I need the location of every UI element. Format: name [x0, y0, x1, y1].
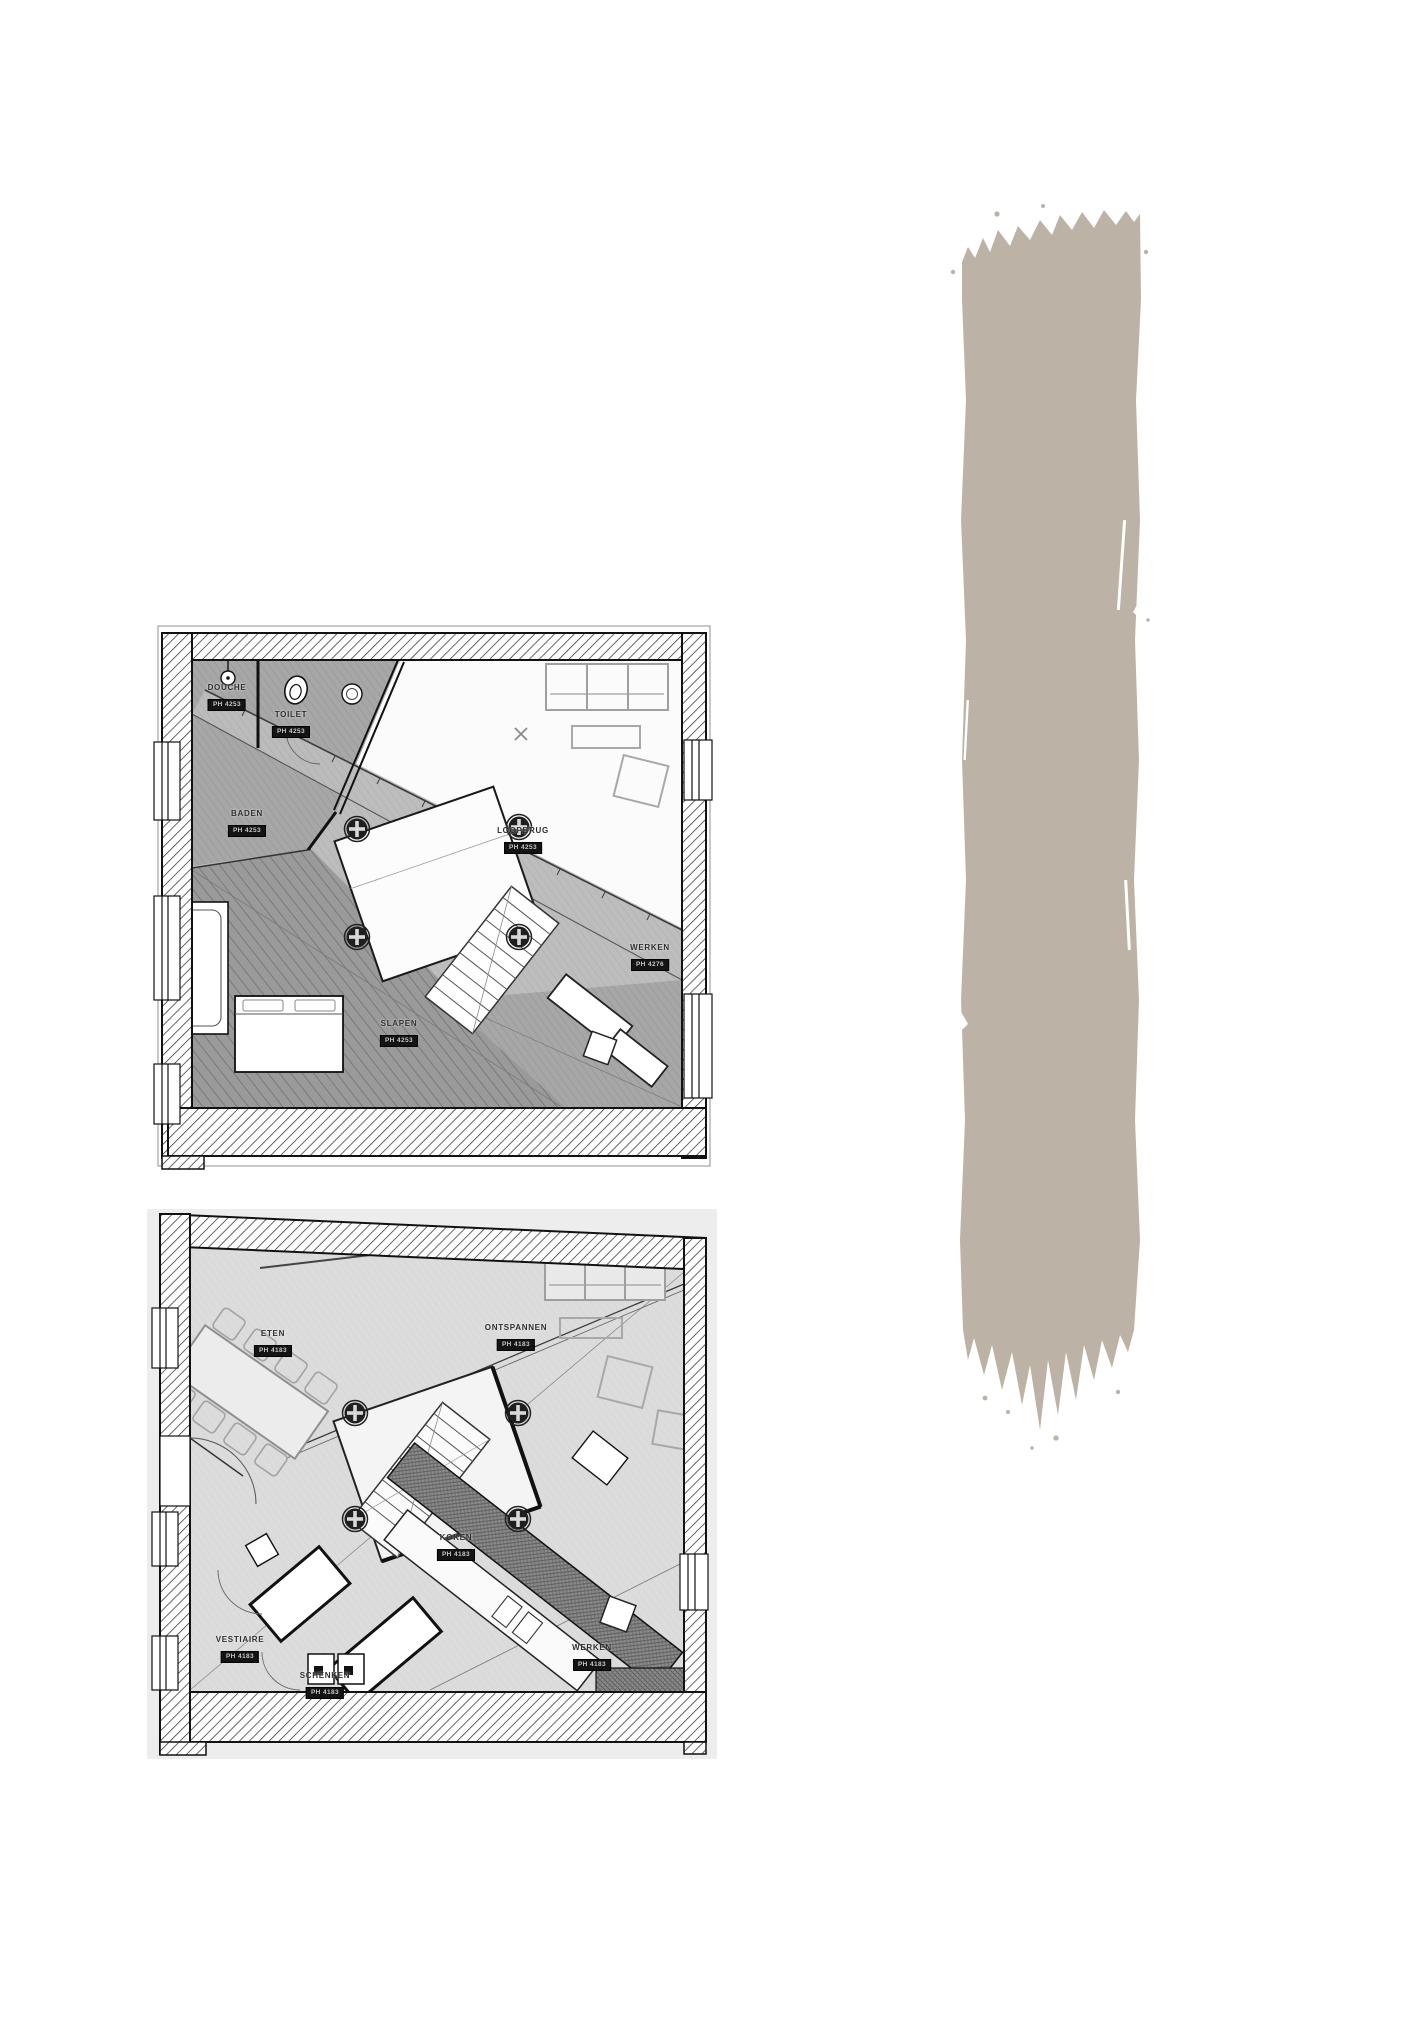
room-level-badge: PH 4183: [573, 1659, 611, 1672]
page: DOUCHE PH 4253 TOILET PH 4253 BADEN PH 4…: [0, 0, 1428, 2028]
room-name: ETEN: [254, 1330, 292, 1339]
room-label-toilet: TOILET PH 4253: [272, 711, 310, 738]
room-label-douche: DOUCHE PH 4253: [208, 684, 247, 711]
floor-plan-lower: [145, 1203, 723, 1765]
room-level-badge: PH 4183: [254, 1345, 292, 1358]
room-name: BADEN: [228, 810, 266, 819]
room-name: SLAPEN: [380, 1020, 418, 1029]
paint-swatch: [940, 195, 1165, 1460]
room-level-badge: PH 4276: [631, 959, 669, 972]
room-name: WERKEN: [630, 944, 670, 953]
room-level-badge: PH 4183: [306, 1687, 344, 1700]
room-level-badge: PH 4183: [497, 1339, 535, 1352]
room-label-baden: BADEN PH 4253: [228, 810, 266, 837]
room-name: KOKEN: [437, 1534, 475, 1543]
room-label-loopbrug: LOOPBRUG PH 4253: [497, 827, 549, 854]
room-label-koken: KOKEN PH 4183: [437, 1534, 475, 1561]
room-name: LOOPBRUG: [497, 827, 549, 836]
room-label-vestiaire: VESTIAIRE PH 4183: [216, 1636, 265, 1663]
brushstroke-shape: [960, 210, 1141, 1430]
room-name: ONTSPANNEN: [485, 1324, 547, 1333]
room-name: WERKEN: [572, 1644, 612, 1653]
room-label-werken-upper: WERKEN PH 4276: [630, 944, 670, 971]
room-level-badge: PH 4253: [208, 699, 246, 712]
room-label-werken-lower: WERKEN PH 4183: [572, 1644, 612, 1671]
room-name: SCHENKEN: [300, 1672, 351, 1681]
washbasin-icon: [342, 684, 362, 704]
room-name: DOUCHE: [208, 684, 247, 693]
room-label-eten: ETEN PH 4183: [254, 1330, 292, 1357]
room-label-schenken: SCHENKEN PH 4183: [300, 1672, 351, 1699]
room-level-badge: PH 4253: [504, 842, 542, 855]
room-level-badge: PH 4253: [380, 1035, 418, 1048]
room-level-badge: PH 4253: [272, 726, 310, 739]
room-level-badge: PH 4183: [437, 1549, 475, 1562]
bed: [235, 996, 343, 1072]
room-label-ontspannen: ONTSPANNEN PH 4183: [485, 1324, 547, 1351]
desk: [596, 1668, 684, 1692]
room-name: TOILET: [272, 711, 310, 720]
room-label-slapen: SLAPEN PH 4253: [380, 1020, 418, 1047]
room-level-badge: PH 4253: [228, 825, 266, 838]
room-level-badge: PH 4183: [221, 1651, 259, 1664]
room-name: VESTIAIRE: [216, 1636, 265, 1645]
